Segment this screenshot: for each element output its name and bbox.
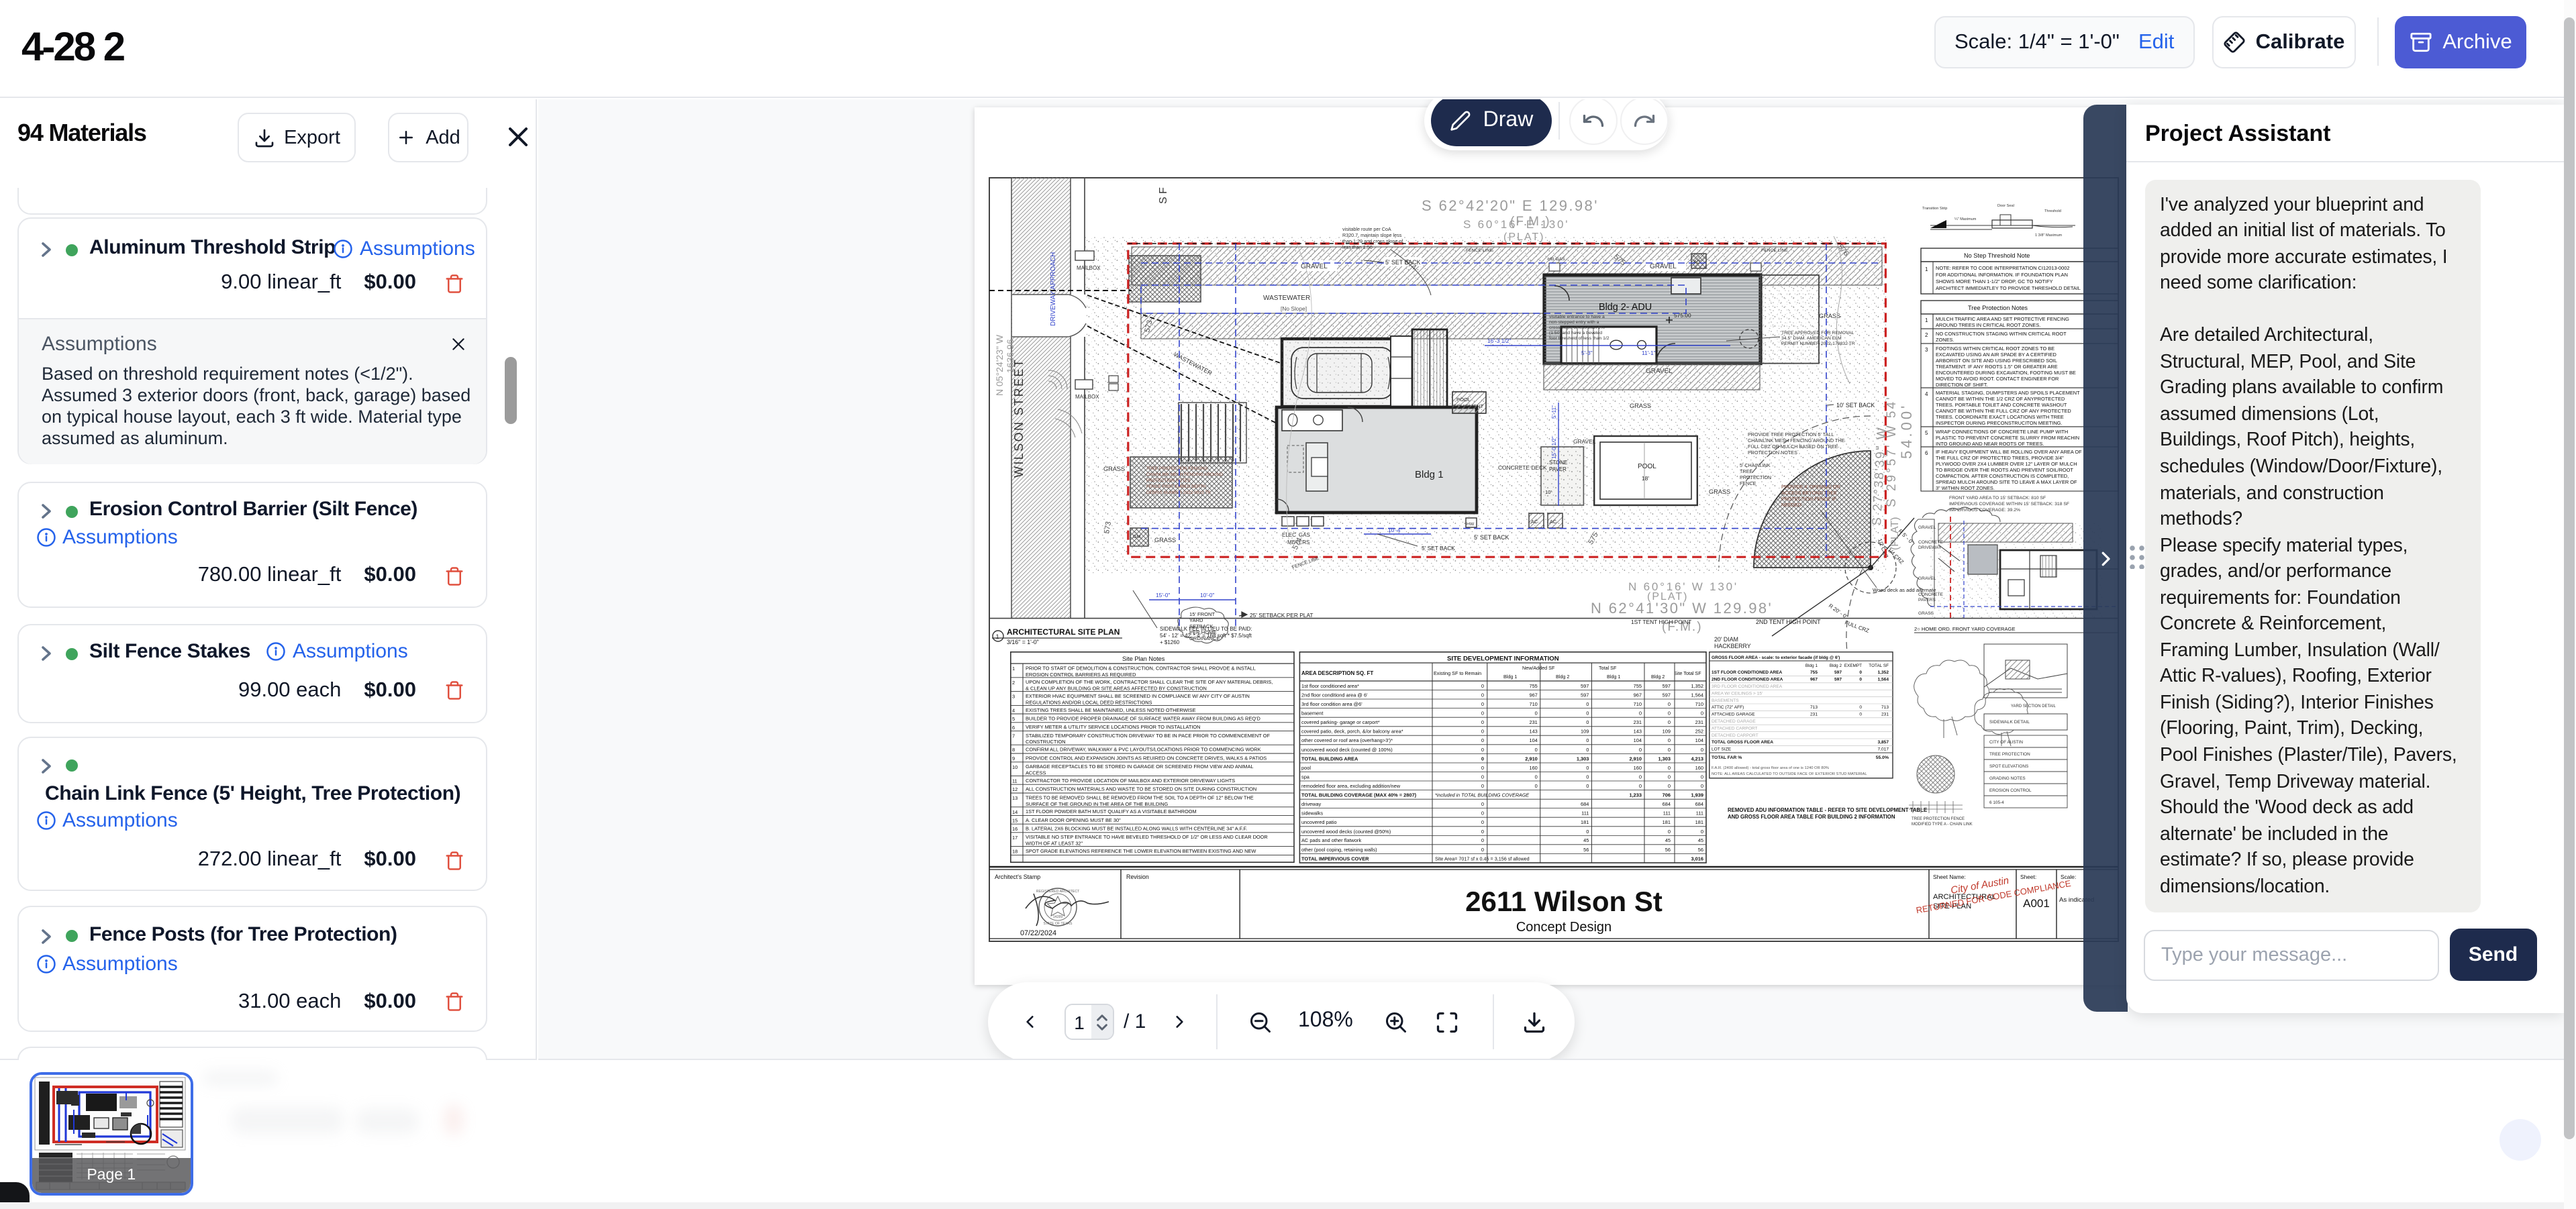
svg-text:710: 710 — [1634, 700, 1642, 706]
svg-text:SPOT ELEVATIONS: SPOT ELEVATIONS — [1989, 764, 2028, 768]
svg-text:1st floor conditioned area*: 1st floor conditioned area* — [1301, 682, 1359, 688]
svg-text:TOTAL GROSS FLOOR AREA: TOTAL GROSS FLOOR AREA — [1712, 739, 1773, 744]
svg-text:684: 684 — [1581, 800, 1589, 806]
svg-text:2: 2 — [1012, 679, 1015, 685]
svg-text:5: 5 — [1012, 715, 1015, 721]
svg-text:PER HOME: PER HOME — [1189, 629, 1217, 635]
svg-text:WRAP CONNECTIONS OF CONCRETE L: WRAP CONNECTIONS OF CONCRETE LINE PUMP W… — [1936, 428, 2068, 434]
svg-text:160: 160 — [1529, 764, 1537, 770]
svg-text:TOTAL BUILDING AREA: TOTAL BUILDING AREA — [1301, 755, 1358, 761]
svg-text:597: 597 — [1663, 682, 1671, 688]
svg-text:10'-0": 10'-0" — [1200, 591, 1214, 598]
svg-text:0: 0 — [1586, 710, 1589, 716]
svg-text:0: 0 — [1701, 773, 1703, 779]
svg-text:MODIFIED TYPE A - CHAIN LINK: MODIFIED TYPE A - CHAIN LINK — [1912, 822, 1973, 826]
svg-text:GRAVEL: GRAVEL — [1918, 576, 1936, 580]
svg-text:Bldg 1: Bldg 1 — [1805, 663, 1818, 668]
svg-text:COMPACTION. AFTER CONSTRUCTION: COMPACTION. AFTER CONSTRUCTION IS COMPLE… — [1936, 472, 2069, 478]
svg-text:684: 684 — [1695, 800, 1703, 806]
svg-text:A001: A001 — [2023, 896, 2050, 909]
svg-text:111: 111 — [1581, 810, 1589, 816]
svg-text:56: 56 — [1583, 846, 1589, 852]
svg-text:5' SET BACK: 5' SET BACK — [1474, 533, 1509, 540]
svg-text:111: 111 — [1663, 810, 1671, 816]
svg-text:10': 10' — [1545, 488, 1552, 494]
svg-text:14289: 14289 — [1053, 914, 1063, 918]
svg-text:11: 11 — [1012, 777, 1018, 783]
svg-text:143: 143 — [1529, 728, 1537, 734]
svg-text:16: 16 — [1012, 825, 1018, 831]
svg-text:CONCRETE: CONCRETE — [1918, 539, 1944, 544]
svg-text:0: 0 — [1668, 737, 1671, 743]
svg-text:NEEDED: NEEDED — [1781, 501, 1801, 507]
svg-text:597: 597 — [1834, 670, 1842, 674]
svg-text:231: 231 — [1634, 719, 1642, 725]
svg-text:UPON COMPLETION OF THE WORK, C: UPON COMPLETION OF THE WORK, CONTRACTOR … — [1026, 678, 1273, 684]
svg-text:NOTE: REFER TO CODE INTERPRETA: NOTE: REFER TO CODE INTERPRETATION CI120… — [1936, 264, 2069, 270]
svg-text:TOTAL BUILDING COVERAGE (MAX 4: TOTAL BUILDING COVERAGE (MAX 40% = 2807) — [1301, 792, 1417, 798]
svg-text:CITY OF AUSTIN: CITY OF AUSTIN — [1989, 739, 2023, 744]
svg-text:SPOT GRADE ELEVATIONS REFERENC: SPOT GRADE ELEVATIONS REFERENCE THE LOWE… — [1026, 847, 1256, 853]
svg-text:0: 0 — [1639, 746, 1642, 752]
svg-text:non-stepped entry with a: non-stepped entry with a — [1549, 319, 1599, 324]
svg-text:597: 597 — [1581, 682, 1589, 688]
svg-text:S 62°42'20" E 129.98': S 62°42'20" E 129.98' — [1422, 197, 1599, 213]
svg-text:18': 18' — [1642, 474, 1649, 481]
svg-text:PRIOR TO START OF DEMOLITION &: PRIOR TO START OF DEMOLITION & CONSTRUCT… — [1026, 664, 1256, 670]
svg-text:[No Slope]: [No Slope] — [1281, 305, 1307, 311]
svg-text:TO BRIDGE OVER THE ROOTS AND P: TO BRIDGE OVER THE ROOTS AND PREVENT SOI… — [1936, 466, 2073, 472]
svg-text:HACKBERRY: HACKBERRY — [1714, 642, 1751, 649]
svg-text:*included in TOTAL BUILDING CO: *included in TOTAL BUILDING COVERAGE — [1435, 792, 1529, 798]
svg-text:GRAVEL: GRAVEL — [1573, 437, 1596, 444]
svg-text:3,016: 3,016 — [1691, 855, 1704, 861]
svg-text:Bldg 1: Bldg 1 — [1503, 673, 1517, 679]
svg-text:VISITABLE NO STEP ENTRANCE TO: VISITABLE NO STEP ENTRANCE TO HAVE BEVEL… — [1026, 833, 1268, 839]
svg-text:104: 104 — [1529, 737, 1537, 743]
svg-text:713: 713 — [1881, 704, 1889, 709]
svg-text:ACCESS BEYOND TREE: ACCESS BEYOND TREE — [1781, 489, 1837, 495]
svg-text:0: 0 — [1859, 677, 1862, 682]
svg-text:Transition Strip: Transition Strip — [1922, 206, 1947, 210]
svg-text:Site Plan Notes: Site Plan Notes — [1122, 655, 1165, 662]
svg-text:0: 0 — [1668, 828, 1671, 834]
svg-text:2ND FLOOR CONDITIONED AREA: 2ND FLOOR CONDITIONED AREA — [1712, 677, 1783, 682]
svg-text:3" WITHIN ROOT ZONES.: 3" WITHIN ROOT ZONES. — [1936, 484, 1995, 490]
svg-text:MULCH TRAFFIC AREA AND SET PRO: MULCH TRAFFIC AREA AND SET PROTECTIVE FE… — [1936, 315, 2069, 321]
svg-text:0: 0 — [1481, 710, 1484, 716]
svg-text:STATE OF TEXAS: STATE OF TEXAS — [1044, 921, 1073, 925]
svg-text:FENCE LINE: FENCE LINE — [1761, 248, 1789, 252]
svg-text:3/16" = 1'-0": 3/16" = 1'-0" — [1007, 638, 1039, 645]
svg-text:706: 706 — [1663, 792, 1671, 798]
svg-text:14: 14 — [1012, 808, 1018, 814]
svg-text:Existing SF to Remain: Existing SF to Remain — [1434, 670, 1481, 676]
svg-text:0: 0 — [1481, 782, 1484, 788]
svg-text:GRASS: GRASS — [1918, 611, 1934, 615]
svg-text:684: 684 — [1663, 800, 1671, 806]
svg-text:0: 0 — [1481, 700, 1484, 706]
svg-text:4: 4 — [1012, 706, 1015, 713]
svg-text:TOTAL SF: TOTAL SF — [1869, 663, 1889, 668]
svg-text:(PLAT): (PLAT) — [1647, 590, 1688, 602]
svg-text:FENCE: FENCE — [1740, 480, 1756, 486]
svg-text:TOTAL FAR %: TOTAL FAR % — [1712, 755, 1742, 759]
svg-text:GM: GM — [1133, 533, 1141, 539]
svg-text:0: 0 — [1481, 728, 1484, 734]
svg-text:13: 13 — [1012, 794, 1018, 800]
svg-text:PERMIT NUMBER 2022-179832 TR: PERMIT NUMBER 2022-179832 TR — [1781, 341, 1855, 346]
svg-text:8: 8 — [1012, 746, 1015, 752]
svg-text:ATTIC (72" AFF): ATTIC (72" AFF) — [1712, 704, 1744, 709]
svg-text:F.A.R. (2400 allowed) - total: F.A.R. (2400 allowed) - total gross floo… — [1712, 766, 1829, 770]
svg-text:SETBACK: SETBACK — [1189, 623, 1213, 629]
svg-text:Tree Protection Notes: Tree Protection Notes — [1968, 304, 2028, 311]
svg-text:0: 0 — [1535, 746, 1538, 752]
svg-text:BASEMENTS: BASEMENTS — [1712, 698, 1739, 702]
svg-text:A. CLEAR DOOR OPENING MUST BE: A. CLEAR DOOR OPENING MUST BE 30" — [1026, 817, 1121, 823]
svg-text:17: 17 — [1012, 834, 1018, 840]
svg-text:SPREAD MULCH AROUND SITE TO LE: SPREAD MULCH AROUND SITE TO LEAVE A MAX … — [1936, 478, 2077, 484]
svg-text:1,939: 1,939 — [1691, 792, 1704, 798]
svg-text:5'-11": 5'-11" — [1551, 405, 1557, 418]
svg-text:TREE: TREE — [1740, 468, 1752, 474]
svg-text:PROVIDE CONTROL AND EXPANSION: PROVIDE CONTROL AND EXPANSION JOINTS AS … — [1026, 754, 1267, 760]
svg-text:VERIFY METER & UTILITY SERVICE: VERIFY METER & UTILITY SERVICE LOCATIONS… — [1026, 723, 1201, 729]
svg-text:PROVIDE 4' OPENING OR: PROVIDE 4' OPENING OR — [1781, 483, 1840, 489]
svg-text:EROSION CONTROL: EROSION CONTROL — [1989, 788, 2032, 792]
svg-text:REGULATIONS AND/OR LOCAL DEED: REGULATIONS AND/OR LOCAL DEED RESTRICTIO… — [1026, 698, 1152, 704]
svg-text:1: 1 — [1925, 266, 1928, 272]
svg-text:Concept Design: Concept Design — [1516, 919, 1612, 934]
svg-text:ATTACHED CARPORT: ATTACHED CARPORT — [1712, 725, 1758, 730]
svg-text:967: 967 — [1810, 677, 1818, 682]
svg-text:0: 0 — [1481, 828, 1484, 834]
svg-text:AC pads and other flatwork: AC pads and other flatwork — [1301, 837, 1361, 843]
svg-text:STABILIZED TEMPORARY CONSTRUCT: STABILIZED TEMPORARY CONSTRUCTION DRIVEW… — [1026, 732, 1270, 738]
svg-text:1ST TENT HIGH POINT: 1ST TENT HIGH POINT — [1631, 618, 1691, 625]
svg-text:Door Seal: Door Seal — [1997, 203, 2014, 207]
svg-text:DETACHED CARPORT: DETACHED CARPORT — [1712, 733, 1758, 737]
svg-text:than 1:20 and cross slope of: than 1:20 and cross slope of — [1342, 238, 1403, 244]
svg-text:1 3/8" Maximum: 1 3/8" Maximum — [2035, 233, 2063, 237]
svg-text:B. LATERAL 2X6 BLOCKING MUST B: B. LATERAL 2X6 BLOCKING MUST BE INSTALLE… — [1026, 825, 1247, 831]
svg-text:0: 0 — [1586, 737, 1589, 743]
svg-text:34.5" DIAM. AMERICAN ELM: 34.5" DIAM. AMERICAN ELM — [1781, 335, 1842, 340]
svg-text:1,303: 1,303 — [1658, 755, 1671, 761]
svg-text:MOVED TO AVOID ROOT. CONTACT E: MOVED TO AVOID ROOT. CONTACT ENGINEER FO… — [1936, 375, 2059, 381]
svg-text:MATERIAL STAGING, DUMPSTERS AN: MATERIAL STAGING, DUMPSTERS AND SPOILS P… — [1936, 389, 2080, 395]
svg-text:PROTECTION NOTES: PROTECTION NOTES — [1146, 478, 1191, 482]
svg-text:PLASTIC TO PREVENT CONCRETE SL: PLASTIC TO PREVENT CONCRETE SLURRY FROM … — [1936, 434, 2079, 440]
svg-text:pool: pool — [1301, 764, 1311, 770]
svg-text:0: 0 — [1668, 719, 1671, 725]
svg-text:ALL CONSTRUCTION MATERIALS AND: ALL CONSTRUCTION MATERIALS AND WASTE TO … — [1026, 786, 1256, 792]
svg-text:755: 755 — [1529, 682, 1537, 688]
svg-text:CONTRACTOR TO PROVIDE LOCATION: CONTRACTOR TO PROVIDE LOCATION OF MAILBO… — [1026, 777, 1235, 783]
svg-text:0: 0 — [1586, 764, 1589, 770]
svg-text:0: 0 — [1481, 737, 1484, 743]
svg-text:(PLAT): (PLAT) — [1503, 231, 1544, 242]
svg-text:0: 0 — [1481, 764, 1484, 770]
svg-text:7: 7 — [1012, 733, 1015, 739]
svg-text:FENCE POST EMBED DEPTH: FENCE POST EMBED DEPTH — [1146, 484, 1206, 488]
svg-text:45: 45 — [1583, 837, 1589, 843]
svg-text:2,910: 2,910 — [1630, 755, 1642, 761]
svg-text:GRASS: GRASS — [1103, 465, 1125, 472]
svg-text:AROUND TREES IN CRITICAL ROOT: AROUND TREES IN CRITICAL ROOT ZONES. — [1936, 321, 2040, 327]
svg-text:0: 0 — [1481, 682, 1484, 688]
svg-text:07/22/2024: 07/22/2024 — [1020, 929, 1056, 937]
svg-text:N 05°24'23" W: N 05°24'23" W — [994, 333, 1005, 395]
svg-text:INSPECTOR DURING PRECONSTRUCIT: INSPECTOR DURING PRECONSTRUCITON MEETING… — [1936, 419, 2063, 425]
svg-text:109: 109 — [1581, 728, 1589, 734]
svg-text:IF HEAVY EQUIPMENT WILL BE ROL: IF HEAVY EQUIPMENT WILL BE ROLLING OVER … — [1936, 448, 2082, 454]
svg-text:AREA DESCRIPTION SQ. FT: AREA DESCRIPTION SQ. FT — [1301, 670, 1373, 676]
svg-text:R320.7, maintain slope less: R320.7, maintain slope less — [1342, 231, 1402, 238]
svg-text:GRADING NOTES: GRADING NOTES — [1989, 776, 2026, 780]
svg-text:HW: HW — [1467, 521, 1475, 526]
svg-text:CANNOT BE WITHIN THE FULL CRZ: CANNOT BE WITHIN THE FULL CRZ OF ANY PRO… — [1936, 407, 2071, 413]
svg-text:755: 755 — [1634, 682, 1642, 688]
svg-text:CONSTRUCTION: CONSTRUCTION — [1026, 738, 1066, 744]
svg-text:5' SET BACK: 5' SET BACK — [1422, 544, 1455, 551]
svg-text:& CLEAN UP ANY BUILDING OR SIT: & CLEAN UP ANY BUILDING OR SITE AREAS AF… — [1026, 685, 1207, 691]
svg-text:56: 56 — [1665, 846, 1671, 852]
svg-text:18: 18 — [1012, 848, 1018, 854]
svg-text:TREE PROTECTION FENCE: TREE PROTECTION FENCE — [1912, 817, 1965, 821]
svg-text:visitable route per CoA: visitable route per CoA — [1342, 225, 1391, 231]
svg-text:DRIVEWAY: DRIVEWAY — [1918, 545, 1942, 549]
svg-text:EXTERIOR HVAC EQUIPMENT SHALL: EXTERIOR HVAC EQUIPMENT SHALL BE SCREENE… — [1026, 692, 1250, 698]
svg-text:2○ HOME ORD. FRONT YARD COVERA: 2○ HOME ORD. FRONT YARD COVERAGE — [1914, 625, 2016, 631]
svg-text:DRIVEWAY APPROACH: DRIVEWAY APPROACH — [1050, 252, 1057, 325]
svg-text:111: 111 — [1696, 810, 1703, 816]
svg-text:597: 597 — [1834, 677, 1842, 682]
svg-text:REMOVED ADU INFORMATION TABLE: REMOVED ADU INFORMATION TABLE - REFER TO… — [1728, 806, 1927, 812]
svg-text:0: 0 — [1701, 782, 1703, 788]
svg-text:56: 56 — [1698, 846, 1703, 852]
svg-text:Revision: Revision — [1126, 873, 1149, 880]
svg-text:CONCRETE: CONCRETE — [1918, 592, 1944, 596]
svg-text:2nd floor conditiond area @ 6': 2nd floor conditiond area @ 6' — [1301, 691, 1368, 697]
svg-text:1ST FLOOR POWDER BATH MUST QUA: 1ST FLOOR POWDER BATH MUST QUALIFY AS A … — [1026, 808, 1197, 814]
svg-text:0: 0 — [1668, 746, 1671, 752]
svg-text:AND GROSS FLOOR AREA TABLE FOR: AND GROSS FLOOR AREA TABLE FOR BUILDING … — [1728, 813, 1895, 819]
svg-text:15'-0 1/2": 15'-0 1/2" — [1551, 435, 1557, 458]
svg-text:0: 0 — [1535, 782, 1538, 788]
svg-text:FRONT YARD AREA TO 15' SETBACK: FRONT YARD AREA TO 15' SETBACK: 810 SF — [1949, 495, 2046, 500]
svg-text:INTO GROUND AND NEAR ROOTS OF: INTO GROUND AND NEAR ROOTS OF TREES. — [1936, 440, 2044, 446]
svg-text:REGISTERED ARCHITECT: REGISTERED ARCHITECT — [1036, 889, 1080, 893]
svg-text:181: 181 — [1663, 819, 1671, 825]
svg-text:PROTECTION: PROTECTION — [1740, 474, 1771, 480]
svg-text:EXCAVATED USING AN AIR SPADE B: EXCAVATED USING AN AIR SPADE BY A CERTIF… — [1936, 351, 2057, 357]
svg-text:231: 231 — [1695, 719, 1703, 725]
svg-text:0: 0 — [1639, 710, 1642, 716]
svg-text:0: 0 — [1481, 837, 1484, 843]
svg-text:1,352: 1,352 — [1877, 670, 1889, 674]
svg-text:remodeled floor area, excludin: remodeled floor area, excluding addition… — [1301, 782, 1401, 788]
svg-text:181: 181 — [1695, 819, 1703, 825]
svg-text:EXEMPT: EXEMPT — [1844, 663, 1862, 668]
svg-text:1,564: 1,564 — [1691, 691, 1704, 697]
svg-text:0: 0 — [1481, 819, 1484, 825]
svg-text:45: 45 — [1698, 837, 1703, 843]
svg-text:¼" Maximum: ¼" Maximum — [1954, 217, 1977, 221]
svg-text:45: 45 — [1665, 837, 1671, 843]
svg-text:FOR ADDITIONAL INFORMATION. IF: FOR ADDITIONAL INFORMATION. IF FOUNDATIO… — [1936, 271, 2068, 277]
svg-text:basement: basement — [1301, 710, 1323, 716]
svg-text:10'-4": 10'-4" — [1388, 526, 1402, 533]
svg-text:0: 0 — [1701, 746, 1703, 752]
svg-text:16'-3 1/2": 16'-3 1/2" — [1487, 337, 1511, 344]
svg-text:0: 0 — [1535, 773, 1538, 779]
svg-text:4: 4 — [1925, 390, 1928, 397]
svg-text:597: 597 — [1581, 691, 1589, 697]
svg-text:uncovered wood decks (counted: uncovered wood decks (counted @50%) — [1301, 828, 1391, 834]
svg-text:15'-0": 15'-0" — [1156, 591, 1170, 598]
svg-text:0: 0 — [1701, 710, 1703, 716]
svg-text:AREA W/ CEILINGS > 15': AREA W/ CEILINGS > 15' — [1712, 690, 1763, 695]
svg-text:Bldg 1: Bldg 1 — [1415, 468, 1444, 480]
svg-text:EQUIPMENT: EQUIPMENT — [1453, 403, 1484, 409]
svg-text:0: 0 — [1481, 746, 1484, 752]
svg-text:0: 0 — [1859, 712, 1862, 717]
svg-text:other (pool coping, retaining: other (pool coping, retaining walls) — [1301, 846, 1377, 852]
svg-text:755: 755 — [1810, 670, 1818, 674]
svg-text:Bldg 2: Bldg 2 — [1830, 663, 1842, 668]
svg-text:TREE APPROVED FOR REMOVAL: TREE APPROVED FOR REMOVAL — [1781, 330, 1854, 335]
svg-text:0: 0 — [1668, 710, 1671, 716]
svg-text:Bldg 2- ADU: Bldg 2- ADU — [1599, 301, 1652, 312]
svg-text:1: 1 — [1012, 665, 1015, 671]
svg-text:2611 Wilson St: 2611 Wilson St — [1465, 885, 1663, 916]
svg-text:0: 0 — [1535, 710, 1538, 716]
svg-text:2: 2 — [1925, 331, 1928, 337]
svg-text:967: 967 — [1634, 691, 1642, 697]
svg-text:IMPERVIOUS COVERAGE WITHIN 15': IMPERVIOUS COVERAGE WITHIN 15' SETBACK: … — [1949, 501, 2069, 506]
svg-text:covered parking- garage or car: covered parking- garage or carport* — [1301, 719, 1380, 725]
svg-text:2,910: 2,910 — [1525, 755, 1538, 761]
svg-text:GROSS FLOOR AREA - scale: to e: GROSS FLOOR AREA - scale: to exterior fa… — [1712, 655, 1840, 660]
svg-text:Site Area= 7017 sf x 0.45 = 3,: Site Area= 7017 sf x 0.45 = 3,156 sf all… — [1435, 855, 1530, 861]
svg-text:foor threshold of less than 1/: foor threshold of less than 1/2 — [1549, 335, 1609, 340]
svg-text:LOT SIZE: LOT SIZE — [1712, 747, 1732, 751]
svg-text:ACCESS: ACCESS — [1026, 769, 1046, 775]
svg-text:0: 0 — [1668, 700, 1671, 706]
svg-text:0: 0 — [1859, 704, 1862, 709]
svg-text:1ST FLOOR CONDITIONED AREA: 1ST FLOOR CONDITIONED AREA — [1712, 670, 1782, 674]
svg-text:POOL: POOL — [1638, 462, 1656, 470]
svg-text:12: 12 — [1012, 786, 1018, 792]
svg-text:PROTECTION FENCE IF: PROTECTION FENCE IF — [1781, 495, 1836, 501]
svg-text:231: 231 — [1881, 712, 1889, 717]
svg-text:TREES TO BE REMOVED SHALL BE R: TREES TO BE REMOVED SHALL BE REMOVED FRO… — [1026, 794, 1254, 800]
svg-text:WIDTH OF AT LEAST 32": WIDTH OF AT LEAST 32" — [1026, 840, 1083, 846]
svg-text:FULL CRZ OR MULCH BASED ON TRE: FULL CRZ OR MULCH BASED ON TREE — [1748, 443, 1838, 449]
svg-text:(1:50) and have a beveled: (1:50) and have a beveled — [1549, 330, 1602, 335]
svg-text:5'-3": 5'-3" — [1581, 349, 1593, 356]
svg-text:MAILBOX: MAILBOX — [1075, 393, 1099, 399]
svg-text:TREES. PORTABLE TOILET AND CON: TREES. PORTABLE TOILET AND CONCRETE WASH… — [1936, 401, 2067, 407]
svg-text:CHAINLINK MESH FENCING AROUND: CHAINLINK MESH FENCING AROUND THE — [1748, 437, 1845, 443]
svg-text:Bldg 2: Bldg 2 — [1556, 673, 1569, 679]
svg-text:7,017: 7,017 — [1877, 747, 1889, 751]
svg-text:0: 0 — [1668, 782, 1671, 788]
svg-text:other covered or roof area (ov: other covered or roof area (overhang>3')… — [1301, 737, 1393, 743]
svg-text:54.00': 54.00' — [1898, 403, 1915, 458]
svg-text:0: 0 — [1481, 800, 1484, 806]
svg-text:104: 104 — [1634, 737, 1642, 743]
svg-text:AC: AC — [1693, 258, 1700, 264]
svg-text:TOTAL IMPERVIOUS COVER: TOTAL IMPERVIOUS COVER — [1301, 855, 1369, 861]
svg-text:Architect's Stamp: Architect's Stamp — [995, 873, 1040, 880]
svg-text:252: 252 — [1695, 728, 1703, 734]
svg-text:1: 1 — [1925, 317, 1928, 323]
svg-text:EROSION CONTROL BARRIERS AS RE: EROSION CONTROL BARRIERS AS REQUIRED — [1026, 671, 1136, 677]
svg-text:AC: AC — [1531, 518, 1538, 524]
svg-text:YARD SECTION DETAIL: YARD SECTION DETAIL — [2011, 704, 2056, 708]
svg-text:(PLAT): (PLAT) — [1889, 517, 1901, 549]
svg-text:GRAVEL: GRAVEL — [1650, 262, 1677, 270]
svg-text:GRASS: GRASS — [1709, 488, 1730, 494]
svg-text:1: 1 — [996, 633, 999, 639]
svg-text:0: 0 — [1586, 719, 1589, 725]
svg-text:PROVIDE TREE PROTECTION 5' TAL: PROVIDE TREE PROTECTION 5' TALL — [1748, 431, 1834, 437]
svg-text:NO CONSTRUCTION STAGING WITHIN: NO CONSTRUCTION STAGING WITHIN CRITICAL … — [1936, 330, 2067, 336]
svg-text:0: 0 — [1481, 755, 1484, 761]
svg-text:+ $1260: + $1260 — [1160, 639, 1180, 645]
svg-text:ARCHITECT IMMEDIATLEY TO PROVI: ARCHITECT IMMEDIATLEY TO PROVIDE THRESHO… — [1936, 284, 2081, 291]
svg-text:SHOWS MORE THAN 1-1/2" DROP, G: SHOWS MORE THAN 1-1/2" DROP, GC TO NOTIF… — [1936, 278, 2053, 284]
svg-text:104: 104 — [1695, 737, 1703, 743]
svg-text:GRAVEL: GRAVEL — [1918, 525, 1936, 529]
svg-text:PAVERS: PAVERS — [1918, 597, 1936, 602]
svg-text:0: 0 — [1481, 691, 1484, 697]
svg-text:109: 109 — [1663, 728, 1671, 734]
svg-text:231: 231 — [1810, 712, 1818, 717]
svg-text:Total SF: Total SF — [1599, 664, 1617, 670]
svg-text:25' SETBACK PER PLAT: 25' SETBACK PER PLAT — [1250, 611, 1314, 618]
svg-text:S F: S F — [1158, 185, 1169, 203]
svg-text:PAVER: PAVER — [1549, 466, 1567, 472]
svg-text:New/Added SF: New/Added SF — [1522, 664, 1555, 670]
svg-text:covered patio, deck, porch, &/: covered patio, deck, porch, &/or balcony… — [1301, 728, 1403, 734]
svg-text:Sheet Name:: Sheet Name: — [1933, 873, 1966, 880]
svg-text:less than 1:50: less than 1:50 — [1342, 244, 1373, 250]
svg-text:0: 0 — [1586, 746, 1589, 752]
svg-text:CONCRETE DECK: CONCRETE DECK — [1498, 464, 1547, 470]
svg-text:160: 160 — [1634, 764, 1642, 770]
svg-text:713: 713 — [1810, 704, 1818, 709]
svg-text:AC: AC — [1550, 518, 1556, 524]
svg-text:10' SET BACK: 10' SET BACK — [1836, 401, 1875, 408]
svg-text:3: 3 — [1925, 346, 1928, 352]
svg-text:15: 15 — [1012, 817, 1018, 823]
svg-text:Threshold: Threshold — [2044, 209, 2061, 213]
svg-text:Bldg 1: Bldg 1 — [1607, 673, 1620, 679]
svg-text:10: 10 — [1012, 764, 1018, 770]
svg-text:FENCE LINE: FENCE LINE — [1466, 248, 1493, 252]
svg-text:1,352: 1,352 — [1691, 682, 1704, 688]
svg-text:TREES. COORDINATE EXACT LOCATI: TREES. COORDINATE EXACT LOCATIONS WITH T… — [1936, 413, 2064, 419]
svg-text:6: 6 — [1925, 450, 1928, 456]
svg-text:2ND TENT HIGH POINT: 2ND TENT HIGH POINT — [1756, 618, 1821, 625]
svg-text:Sheet:: Sheet: — [2020, 873, 2036, 880]
svg-text:710: 710 — [1529, 700, 1537, 706]
svg-text:HB GAS: HB GAS — [1548, 256, 1565, 261]
